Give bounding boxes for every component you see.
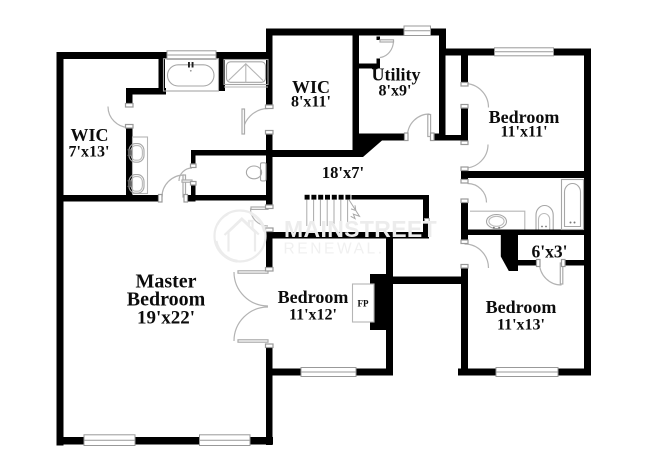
svg-text:Utility: Utility [372,65,421,85]
svg-text:19'x22': 19'x22' [137,308,195,329]
svg-text:RENEWAL.: RENEWAL. [284,241,385,258]
svg-text:11'x11': 11'x11' [500,124,547,141]
svg-text:11'x13': 11'x13' [497,317,545,334]
svg-text:FP: FP [358,299,369,309]
svg-text:MAINSTREET: MAINSTREET [284,216,437,242]
svg-text:18'x7': 18'x7' [322,163,364,182]
svg-text:6'x3': 6'x3' [532,242,568,262]
svg-text:7'x13': 7'x13' [69,144,110,161]
svg-text:8'x11': 8'x11' [291,94,331,111]
svg-text:Bedroom: Bedroom [278,287,349,307]
svg-text:WIC: WIC [70,125,108,145]
svg-text:11'x12': 11'x12' [289,307,337,324]
svg-text:Bedroom: Bedroom [486,297,557,317]
svg-text:8'x9': 8'x9' [379,83,412,100]
